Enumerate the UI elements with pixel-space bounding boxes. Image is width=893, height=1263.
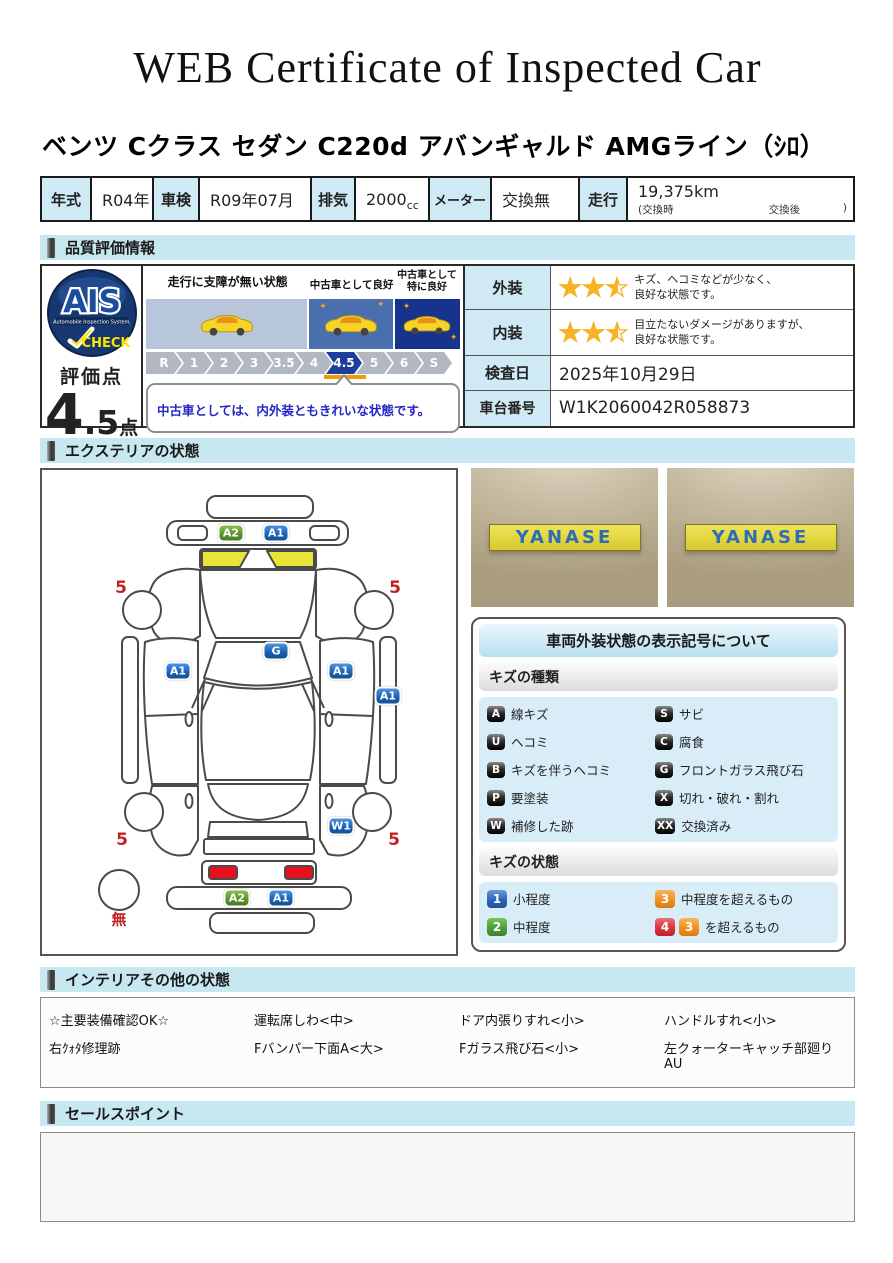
tread-depth-rear-left: 5 — [116, 830, 128, 850]
vin-number: W1K2060042R058873 — [559, 398, 750, 418]
car-name: ベンツ Cクラス セダン C220d アバンギャルド AMGライン（ｼﾛ） — [42, 127, 855, 163]
grade-step: R — [146, 352, 182, 374]
car-icon — [401, 312, 453, 336]
zone-bands: ✦ ✦ ✦ ✦ — [146, 299, 460, 349]
damage-badge-front-bumper-a1: A1 — [263, 524, 290, 543]
rating-scale-panel: 走行に支障が無い状態 中古車として良好 中古車として 特に良好 ✦ ✦ — [143, 266, 465, 426]
svg-text:AIS: AIS — [63, 284, 121, 320]
legend-item: 43を超えるもの — [655, 917, 830, 936]
grade-scale: R 1 2 3 3.5 4 4.5 5 6 S — [146, 352, 452, 374]
interior-note: ☆主要装備確認OK☆ — [49, 1010, 254, 1029]
state-badge-1: 1 — [487, 890, 507, 908]
state-badge-2: 2 — [487, 918, 507, 936]
legend-kind-grid: A線キズ Sサビ Uヘコミ C腐食 Bキズを伴うヘコミ Gフロントガラス飛び石 … — [479, 697, 838, 842]
zone-band-2: ✦ ✦ — [309, 299, 393, 349]
section-header-interior: インテリアその他の状態 — [40, 967, 855, 992]
interior-rating-text: 目立たないダメージがありますが、 良好な状態です。 — [634, 317, 809, 348]
spec-shaken-value: R09年07月 — [199, 177, 311, 221]
car-damage-diagram: A2 A1 G A1 A1 A1 W1 A2 A1 5 5 5 5 無 — [40, 468, 458, 956]
tread-depth-front-left: 5 — [115, 578, 127, 598]
zone-label-3: 中古車として 特に良好 — [394, 270, 460, 293]
section-header-quality: 品質評価情報 — [40, 235, 855, 260]
interior-note: 運転席しわ<中> — [254, 1010, 459, 1029]
spec-table: 年式 R04年 車検 R09年07月 排気 2000cc メーター 交換無 走行… — [40, 176, 855, 222]
zone-band-1 — [146, 299, 307, 349]
zone-label-2: 中古車として良好 — [309, 277, 394, 292]
kind-badge-b: B — [487, 762, 505, 778]
interior-note: 右ｸｫﾀ修理跡 — [49, 1038, 254, 1072]
sparkle-icon: ✦ — [403, 302, 411, 312]
score-value: 4.5点 — [44, 391, 139, 441]
damage-badge-left-door-a1: A1 — [165, 662, 192, 681]
damage-badge-rear-bumper-a2: A2 — [224, 889, 251, 908]
state-badge-3: 3 — [679, 918, 699, 936]
legend-item: 2中程度 — [487, 917, 655, 936]
sales-point-box — [40, 1132, 855, 1222]
spec-meter-value: 交換無 — [491, 177, 579, 221]
spec-meter-label: メーター — [429, 177, 491, 221]
spare-tire-label: 無 — [111, 909, 126, 930]
interior-note: 左クォーターキャッチ部廻りAU — [664, 1038, 846, 1072]
interior-note: ハンドルすれ<小> — [664, 1010, 846, 1029]
inspection-date: 2025年10月29日 — [559, 360, 697, 385]
spec-shaken-label: 車検 — [153, 177, 199, 221]
legend-state-grid: 1小程度 3中程度を超えるもの 2中程度 43を超えるもの — [479, 882, 838, 943]
kind-badge-a: A — [487, 706, 505, 722]
spec-displacement-label: 排気 — [311, 177, 355, 221]
svg-text:CHECK: CHECK — [81, 336, 131, 351]
mileage-note: (交換時 交換後 ) — [638, 202, 847, 217]
inspection-date-row: 検査日 2025年10月29日 — [465, 356, 853, 391]
grade-comment-bubble: 中古車としては、内外装ともきれいな状態です。 — [146, 383, 460, 433]
damage-legend: 車両外装状態の表示記号について キズの種類 A線キズ Sサビ Uヘコミ C腐食 … — [471, 617, 846, 952]
certificate-page: WEB Certificate of Inspected Car ベンツ Cクラ… — [0, 0, 893, 1222]
legend-item: X切れ・破れ・割れ — [655, 788, 830, 807]
legend-item: A線キズ — [487, 704, 655, 723]
damage-badge-right-rocker-a1: A1 — [375, 687, 402, 706]
interior-stars: ★★★★★★ — [559, 320, 629, 345]
legend-item: 1小程度 — [487, 889, 655, 908]
spec-mileage-label: 走行 — [579, 177, 627, 221]
section-header-sales: セールスポイント — [40, 1101, 855, 1126]
ais-logo: AIS Automobile Inspection System. CHECK — [46, 269, 138, 357]
spec-mileage-value: 19,375km (交換時 交換後 ) — [627, 177, 854, 221]
car-outline-drawing — [42, 470, 456, 954]
spec-year-label: 年式 — [41, 177, 91, 221]
section-header-exterior: エクステリアの状態 — [40, 438, 855, 463]
legend-item: 3中程度を超えるもの — [655, 889, 830, 908]
zone-band-3: ✦ ✦ — [395, 299, 460, 349]
tread-depth-front-right: 5 — [389, 578, 401, 598]
ais-panel: AIS Automobile Inspection System. CHECK … — [42, 266, 143, 426]
car-icon — [198, 311, 256, 337]
damage-badge-front-bumper-a2: A2 — [218, 524, 245, 543]
state-badge-3: 3 — [655, 890, 675, 908]
legend-title: 車両外装状態の表示記号について — [479, 624, 838, 657]
vehicle-photo-2: YANASE — [667, 468, 854, 607]
section-bar-icon — [47, 970, 55, 990]
yanase-sign: YANASE — [685, 524, 837, 551]
exterior-rating-text: キズ、ヘコミなどが少なく、 良好な状態です。 — [634, 272, 777, 303]
car-icon — [322, 311, 380, 337]
kind-badge-u: U — [487, 734, 505, 750]
mileage-main: 19,375km — [638, 182, 847, 201]
legend-item: XX交換済み — [655, 816, 830, 835]
section-bar-icon — [47, 238, 55, 258]
zone-label-1: 走行に支障が無い状態 — [146, 273, 309, 290]
spec-year-value: R04年 — [91, 177, 153, 221]
legend-item: Uヘコミ — [487, 732, 655, 751]
vehicle-photo-1: YANASE — [471, 468, 658, 607]
sparkle-icon: ✦ — [450, 333, 458, 343]
tread-depth-rear-right: 5 — [388, 830, 400, 850]
damage-badge-rear-quarter-w1: W1 — [328, 817, 355, 836]
quality-box: AIS Automobile Inspection System. CHECK … — [40, 264, 855, 428]
interior-rating-row: 内装 ★★★★★★ 目立たないダメージがありますが、 良好な状態です。 — [465, 310, 853, 356]
yanase-sign: YANASE — [489, 524, 641, 551]
section-bar-icon — [47, 441, 55, 461]
legend-item: Sサビ — [655, 704, 830, 723]
section-bar-icon — [47, 1104, 55, 1124]
legend-kind-header: キズの種類 — [479, 663, 838, 691]
legend-item: C腐食 — [655, 732, 830, 751]
vin-row: 車台番号 W1K2060042R058873 — [465, 391, 853, 426]
kind-badge-x: X — [655, 790, 673, 806]
exterior-stars: ★★★★★★ — [559, 275, 629, 300]
kind-badge-p: P — [487, 790, 505, 806]
interior-notes-box: ☆主要装備確認OK☆ 運転席しわ<中> ドア内張りすれ<小> ハンドルすれ<小>… — [40, 997, 855, 1088]
vehicle-photos: YANASE YANASE — [471, 468, 855, 607]
legend-state-header: キズの状態 — [479, 848, 838, 876]
sparkle-icon: ✦ — [377, 300, 385, 310]
legend-item: P要塗装 — [487, 788, 655, 807]
interior-note: ドア内張りすれ<小> — [459, 1010, 664, 1029]
quality-detail-table: 外装 ★★★★★★ キズ、ヘコミなどが少なく、 良好な状態です。 内装 ★★★★… — [465, 266, 853, 426]
state-badge-4: 4 — [655, 918, 675, 936]
spec-displacement-unit: cc — [407, 199, 419, 212]
page-title: WEB Certificate of Inspected Car — [40, 42, 855, 93]
interior-note: Fバンパー下面A<大> — [254, 1038, 459, 1072]
spec-displacement-value: 2000cc — [355, 177, 429, 221]
exterior-rating-row: 外装 ★★★★★★ キズ、ヘコミなどが少なく、 良好な状態です。 — [465, 266, 853, 310]
kind-badge-s: S — [655, 706, 673, 722]
legend-item: W補修した跡 — [487, 816, 655, 835]
kind-badge-c: C — [655, 734, 673, 750]
kind-badge-w: W — [487, 818, 505, 834]
legend-item: Gフロントガラス飛び石 — [655, 760, 830, 779]
interior-note: Fガラス飛び石<小> — [459, 1038, 664, 1072]
kind-badge-xx: XX — [655, 818, 675, 834]
sparkle-icon: ✦ — [319, 302, 327, 312]
damage-badge-right-door-a1: A1 — [328, 662, 355, 681]
damage-badge-windshield-g: G — [263, 642, 290, 661]
legend-item: Bキズを伴うヘコミ — [487, 760, 655, 779]
kind-badge-g: G — [655, 762, 673, 778]
svg-text:Automobile Inspection System.: Automobile Inspection System. — [53, 320, 131, 326]
damage-badge-rear-bumper-a1: A1 — [268, 889, 295, 908]
zone-labels: 走行に支障が無い状態 中古車として良好 中古車として 特に良好 — [146, 269, 460, 299]
